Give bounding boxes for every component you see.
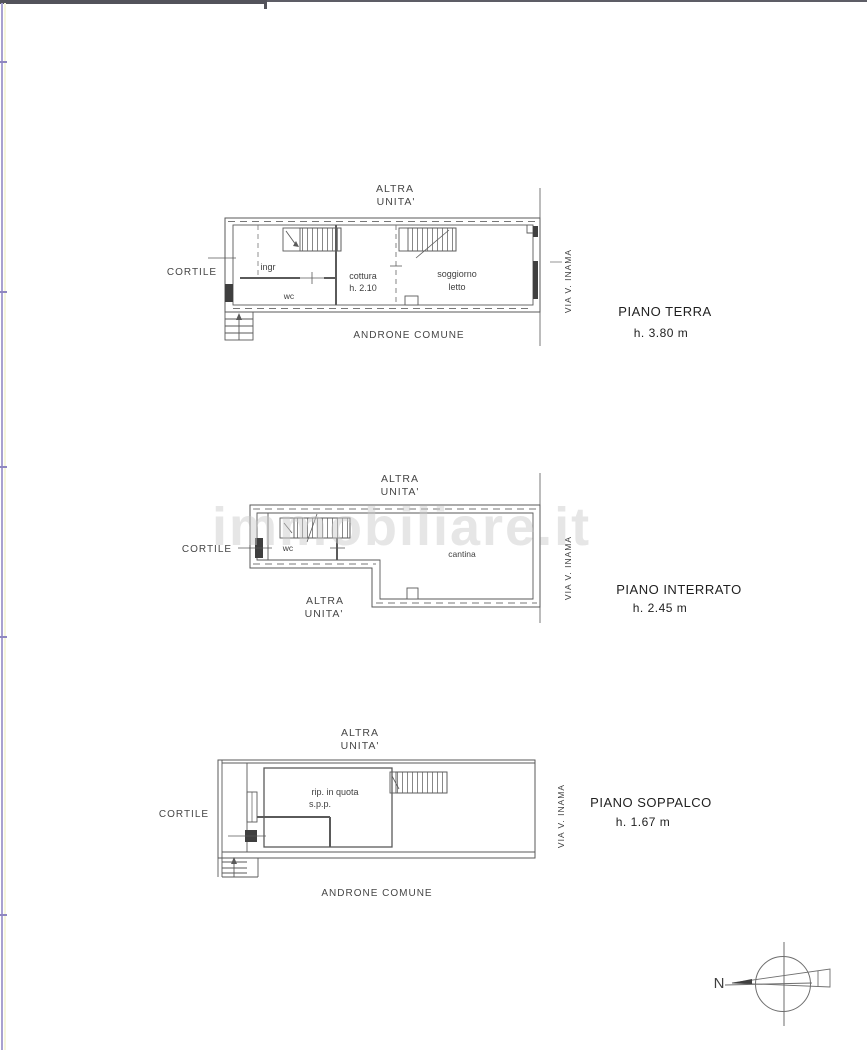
- room-label-cottura: cottura: [349, 271, 377, 281]
- room-label-spp: s.p.p.: [309, 799, 331, 809]
- walls-outline: [250, 505, 540, 607]
- door-dark-fitting: [225, 284, 233, 302]
- floor-title: PIANO TERRA: [618, 304, 711, 319]
- room-label-letto: letto: [448, 282, 465, 292]
- window-bar: [533, 226, 538, 237]
- room-label-wc: wc: [283, 291, 295, 301]
- floor-title: PIANO SOPPALCO: [590, 795, 712, 810]
- north-label: N: [714, 975, 725, 992]
- inner-walls: [330, 538, 345, 560]
- floor-plan-piano-soppalco: ALTRA UNITA' CORTILE rip. in quota s.p.p…: [159, 727, 712, 899]
- label-cortile: CORTILE: [159, 809, 209, 820]
- label-altra-unita-line2: UNITA': [381, 486, 420, 498]
- label-altra-unita-line2: UNITA': [377, 196, 416, 208]
- room-label-soggiorno: soggiorno: [437, 269, 477, 279]
- room-label-ingresso: ingr: [260, 262, 275, 272]
- label-altra-unita2-line2: UNITA': [305, 608, 344, 620]
- compass: N: [714, 942, 830, 1026]
- label-street: VIA V. INAMA: [563, 249, 573, 313]
- label-street: VIA V. INAMA: [556, 784, 566, 848]
- label-androne-comune: ANDRONE COMUNE: [353, 330, 464, 341]
- exterior-steps: [222, 857, 258, 877]
- floor-title: PIANO INTERRATO: [616, 582, 741, 597]
- label-altra-unita-line1: ALTRA: [381, 473, 419, 485]
- label-androne-comune: ANDRONE COMUNE: [321, 888, 432, 899]
- walls-outline: [218, 760, 535, 877]
- window-bar: [533, 261, 538, 299]
- room-label-cantina: cantina: [448, 549, 476, 559]
- floor-plan-piano-interrato: ALTRA UNITA' CORTILE wc cantina ALTRA UN…: [182, 473, 742, 623]
- room-label-wc: wc: [282, 543, 294, 553]
- label-altra-unita-line1: ALTRA: [341, 727, 379, 739]
- floorplan-page: ALTRA UNITA' CORTILE ingr wc cottura h. …: [0, 0, 867, 1050]
- floor-plan-piano-terra: ALTRA UNITA' CORTILE ingr wc cottura h. …: [167, 183, 712, 346]
- staircase: [280, 514, 350, 542]
- floorplan-drawing: ALTRA UNITA' CORTILE ingr wc cottura h. …: [0, 0, 867, 1050]
- floor-height: h. 3.80 m: [634, 326, 689, 340]
- label-altra-unita-line2: UNITA': [341, 740, 380, 752]
- room-label-cottura-height: h. 2.10: [349, 283, 377, 293]
- floor-height: h. 2.45 m: [633, 601, 688, 615]
- staircase: [390, 772, 447, 793]
- staircase: [399, 228, 456, 258]
- exterior-steps: [225, 312, 253, 340]
- label-street: VIA V. INAMA: [563, 536, 573, 600]
- label-cortile: CORTILE: [182, 544, 232, 555]
- floor-height: h. 1.67 m: [616, 815, 671, 829]
- room-label-rip: rip. in quota: [311, 787, 358, 797]
- label-altra-unita2-line1: ALTRA: [306, 595, 344, 607]
- label-altra-unita-line1: ALTRA: [376, 183, 414, 195]
- label-cortile: CORTILE: [167, 267, 217, 278]
- staircase: [283, 228, 341, 251]
